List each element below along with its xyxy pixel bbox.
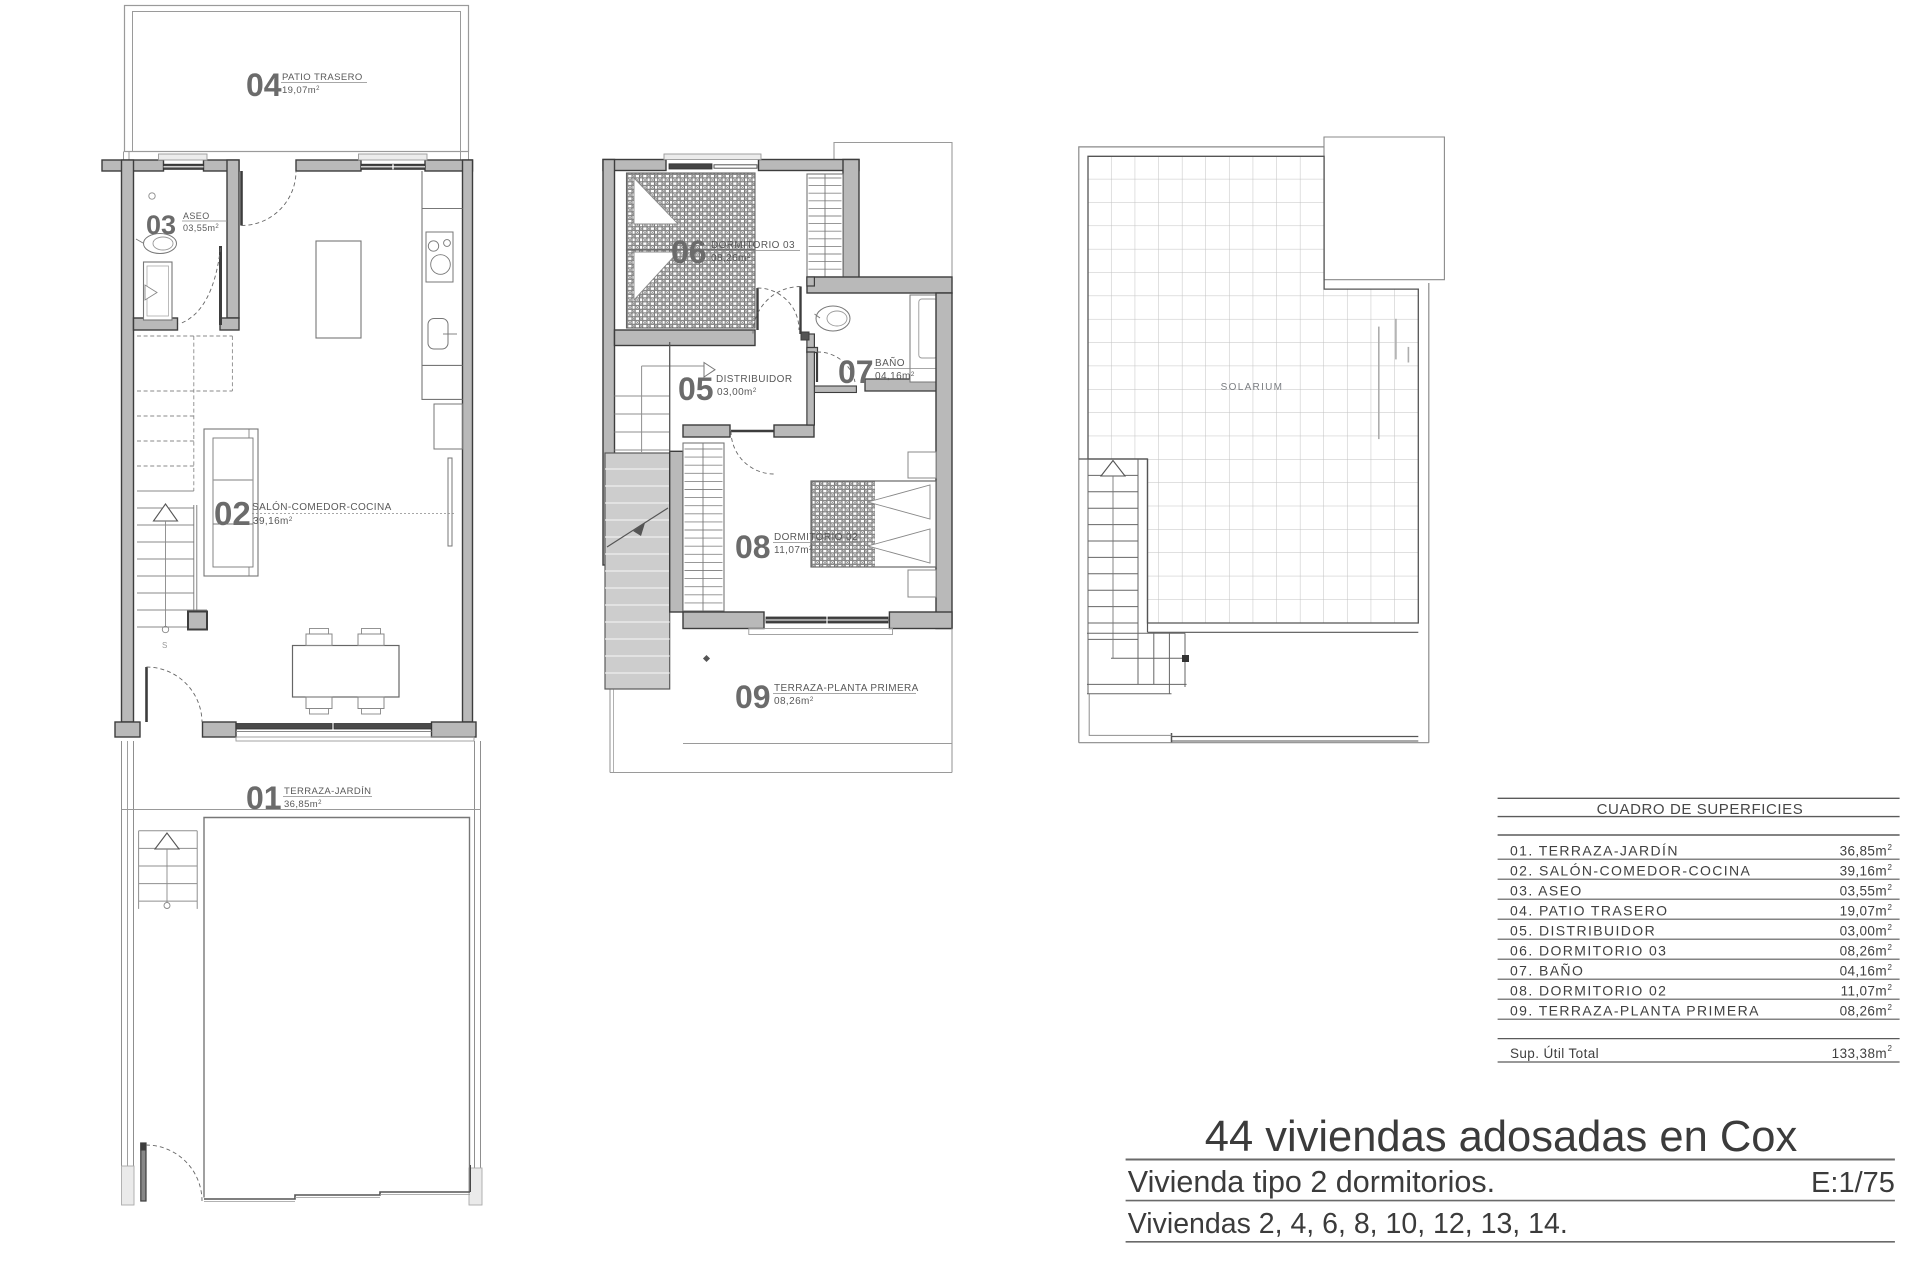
svg-text:Viviendas 2, 4, 6, 8, 10, 12,: Viviendas 2, 4, 6, 8, 10, 12, 13, 14. <box>1128 1208 1568 1240</box>
svg-text:133,38m: 133,38m <box>1832 1046 1887 1061</box>
svg-text:03: 03 <box>146 210 176 240</box>
svg-text:08,26m2: 08,26m2 <box>774 696 814 707</box>
svg-text:36,85m: 36,85m <box>1840 844 1887 859</box>
svg-text:BAÑO: BAÑO <box>875 356 905 369</box>
svg-text:2: 2 <box>1888 843 1893 852</box>
svg-text:07: 07 <box>838 354 874 390</box>
svg-text:03,55m: 03,55m <box>1840 884 1887 899</box>
svg-text:2: 2 <box>1888 923 1893 932</box>
svg-text:2: 2 <box>1888 903 1893 912</box>
svg-text:TERRAZA-PLANTA PRIMERA: TERRAZA-PLANTA PRIMERA <box>774 683 919 694</box>
svg-text:SALÓN-COMEDOR-COCINA: SALÓN-COMEDOR-COCINA <box>252 500 392 513</box>
svg-text:09. TERRAZA-PLANTA PRIMERA: 09. TERRAZA-PLANTA PRIMERA <box>1510 1003 1760 1019</box>
svg-text:SOLARIUM: SOLARIUM <box>1221 382 1284 393</box>
svg-text:ASEO: ASEO <box>183 211 210 221</box>
svg-text:DORMITORIO 02: DORMITORIO 02 <box>774 532 858 543</box>
svg-text:02. SALÓN-COMEDOR-COCINA: 02. SALÓN-COMEDOR-COCINA <box>1510 863 1751 879</box>
svg-text:01. TERRAZA-JARDÍN: 01. TERRAZA-JARDÍN <box>1510 843 1679 859</box>
svg-text:06: 06 <box>671 234 707 270</box>
svg-text:44 viviendas adosadas en Cox: 44 viviendas adosadas en Cox <box>1205 1113 1798 1161</box>
svg-text:08. DORMITORIO 02: 08. DORMITORIO 02 <box>1510 983 1667 999</box>
svg-text:39,16m2: 39,16m2 <box>253 516 293 527</box>
svg-text:01: 01 <box>246 780 282 816</box>
svg-text:Vivienda tipo 2 dormitorios.: Vivienda tipo 2 dormitorios. <box>1128 1165 1495 1199</box>
svg-text:08: 08 <box>735 529 771 565</box>
svg-text:DORMITORIO 03: DORMITORIO 03 <box>711 240 795 251</box>
svg-text:04. PATIO TRASERO: 04. PATIO TRASERO <box>1510 903 1668 919</box>
svg-text:03,55m2: 03,55m2 <box>183 223 219 233</box>
svg-text:04,16m: 04,16m <box>1840 964 1887 979</box>
svg-text:03,00m2: 03,00m2 <box>717 387 757 398</box>
svg-text:05: 05 <box>678 371 714 407</box>
svg-text:11,07m: 11,07m <box>1841 984 1887 999</box>
svg-text:03,00m: 03,00m <box>1840 924 1887 939</box>
svg-text:2: 2 <box>1888 863 1893 872</box>
svg-text:CUADRO DE SUPERFICIES: CUADRO DE SUPERFICIES <box>1597 801 1804 818</box>
svg-text:04,16m2: 04,16m2 <box>875 371 915 382</box>
svg-text:2: 2 <box>1888 883 1893 892</box>
svg-text:11,07m2: 11,07m2 <box>774 545 813 556</box>
svg-text:09: 09 <box>735 679 771 715</box>
svg-text:03. ASEO: 03. ASEO <box>1510 883 1583 899</box>
svg-text:19,07m: 19,07m <box>1840 904 1887 919</box>
svg-text:08,26m: 08,26m <box>1840 944 1887 959</box>
svg-text:TERRAZA-JARDÍN: TERRAZA-JARDÍN <box>284 786 371 797</box>
svg-text:PATIO TRASERO: PATIO TRASERO <box>282 72 363 83</box>
svg-text:04: 04 <box>246 67 282 103</box>
svg-text:S: S <box>162 641 168 650</box>
svg-text:E:1/75: E:1/75 <box>1811 1167 1895 1199</box>
svg-text:2: 2 <box>1888 1003 1893 1012</box>
svg-text:08,26m2: 08,26m2 <box>711 253 751 264</box>
svg-text:08,26m: 08,26m <box>1840 1004 1887 1019</box>
svg-text:DISTRIBUIDOR: DISTRIBUIDOR <box>716 374 792 385</box>
svg-text:36,85m2: 36,85m2 <box>284 799 322 810</box>
svg-text:39,16m: 39,16m <box>1840 864 1887 879</box>
svg-text:07. BAÑO: 07. BAÑO <box>1510 963 1584 979</box>
svg-text:2: 2 <box>1888 1044 1893 1053</box>
svg-text:2: 2 <box>1888 943 1893 952</box>
svg-text:2: 2 <box>1888 983 1893 992</box>
svg-text:2: 2 <box>1888 963 1893 972</box>
svg-text:02: 02 <box>214 495 251 532</box>
svg-text:06. DORMITORIO 03: 06. DORMITORIO 03 <box>1510 943 1667 959</box>
svg-text:Sup. Útil Total: Sup. Útil Total <box>1510 1046 1599 1061</box>
svg-text:19,07m2: 19,07m2 <box>282 85 320 96</box>
svg-text:05. DISTRIBUIDOR: 05. DISTRIBUIDOR <box>1510 923 1656 939</box>
